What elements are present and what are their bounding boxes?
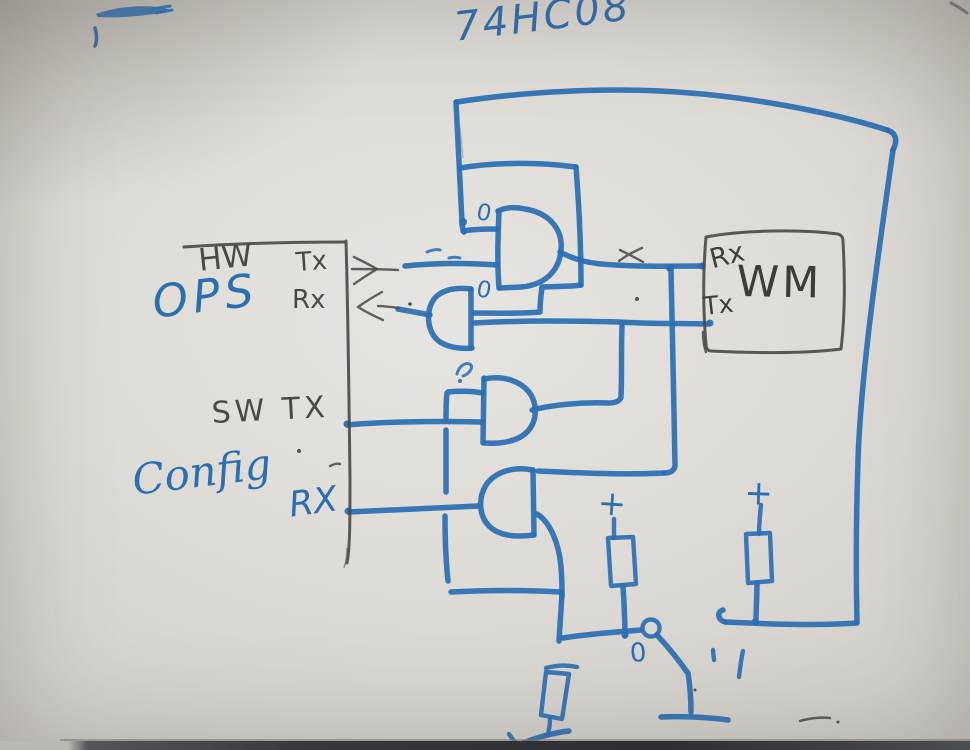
config-rx-label: RX bbox=[287, 482, 340, 523]
wm-tx-label: Tx bbox=[702, 291, 735, 319]
hw-tx-label: Tx bbox=[295, 248, 328, 276]
sw-tx-label: SW TX bbox=[211, 393, 330, 429]
ops-label: OPS bbox=[150, 267, 261, 325]
ops-rx-label: Rx bbox=[292, 287, 325, 313]
handwritten-labels: 74HC08 HW Tx OPS Rx SW TX Config RX WM R… bbox=[0, 0, 970, 750]
whiteboard-tray bbox=[0, 741, 970, 750]
chip-title: 74HC08 bbox=[452, 0, 633, 48]
gate1-zero-note: 0 bbox=[474, 201, 493, 227]
config-label: Config bbox=[130, 443, 273, 502]
whiteboard-photo: 74HC08 HW Tx OPS Rx SW TX Config RX WM R… bbox=[0, 0, 970, 750]
wm-rx-label: Rx bbox=[707, 239, 747, 274]
gate2-zero-note: 0 bbox=[474, 278, 493, 304]
wm-module-label: WM bbox=[736, 261, 822, 305]
switch-zero-note: 0 bbox=[629, 640, 647, 667]
pullup-left-plus: + bbox=[597, 486, 628, 522]
pullup-right-plus: + bbox=[744, 476, 774, 511]
